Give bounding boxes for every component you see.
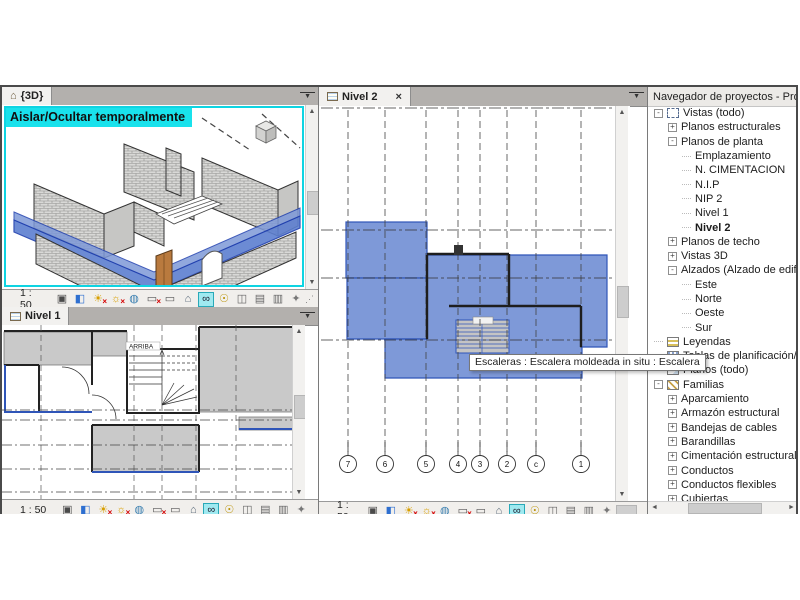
- collapse-icon[interactable]: -: [654, 109, 663, 118]
- tree-item-label: Planos de planta: [681, 136, 763, 148]
- crop-off-icon[interactable]: ▭×: [149, 503, 165, 515]
- render-icon[interactable]: ◍: [126, 292, 142, 307]
- tree-item-vistas-3d[interactable]: +Vistas 3D: [648, 249, 798, 263]
- tab-nivel2[interactable]: Nivel 2 ×: [319, 87, 411, 106]
- legend-icon: [667, 337, 679, 347]
- tab-nivel1-label: Nivel 1: [25, 310, 60, 322]
- displace-icon[interactable]: ▤: [257, 503, 273, 515]
- nivel2-tab-bar: Nivel 2 × ▼: [319, 87, 647, 107]
- expand-icon[interactable]: +: [668, 423, 677, 432]
- nivel1-canvas[interactable]: ARRIBA ▲ ▼: [2, 325, 305, 499]
- disabled-badge-icon: ×: [431, 506, 436, 515]
- tree-item-label: Armazón estructural: [681, 407, 779, 419]
- temporary-hide-isolate-banner: Aislar/Ocultar temporalmente: [6, 108, 192, 127]
- tree-item-planos-estructurales[interactable]: +Planos estructurales: [648, 120, 798, 134]
- worksharing-icon[interactable]: ◫: [234, 292, 250, 307]
- stair-plan: [129, 350, 197, 405]
- scroll-down-icon[interactable]: ▼: [306, 276, 318, 289]
- disabled-badge-icon: ×: [108, 505, 113, 515]
- tree-item-conductos-flexibles[interactable]: +Conductos flexibles: [648, 478, 798, 492]
- project-browser-panel: Navegador de proyectos - Proyec... -Vist…: [647, 87, 798, 514]
- tree-connector: [682, 184, 691, 185]
- crop-off-icon[interactable]: ▭×: [455, 504, 471, 515]
- shadows-off-icon[interactable]: ☀×: [401, 504, 417, 515]
- view3d-icon: ⌂: [10, 90, 17, 102]
- grid-bubble-label: 7: [346, 460, 351, 469]
- tree-item-alzados-alzado-de-edificio[interactable]: -Alzados (Alzado de edificio: [648, 263, 798, 277]
- shadows-off-icon[interactable]: ☀×: [95, 503, 111, 515]
- temporary-hide-isolate-icon[interactable]: ∞: [509, 504, 525, 515]
- tree-connector: [682, 227, 691, 228]
- element-tooltip: Escaleras : Escalera moldeada in situ : …: [469, 354, 706, 371]
- tree-item-este[interactable]: Este: [648, 278, 798, 292]
- expand-icon[interactable]: +: [668, 480, 677, 489]
- disabled-badge-icon: ×: [126, 505, 131, 515]
- shaded-view-icon[interactable]: ◧: [72, 292, 88, 307]
- tab-menu-arrow-icon[interactable]: ▼: [300, 92, 315, 101]
- nivel2-view-column: Nivel 2 × ▼: [318, 87, 647, 514]
- scroll-down-icon[interactable]: ▼: [616, 488, 628, 501]
- tree-item-sur[interactable]: Sur: [648, 320, 798, 334]
- tree-item-label: Vistas (todo): [683, 107, 745, 119]
- tree-item-label: Aparcamiento: [681, 393, 749, 405]
- tree-item-label: Leyendas: [683, 336, 731, 348]
- scroll-down-icon[interactable]: ▼: [293, 486, 305, 499]
- tree-item-n-i-p[interactable]: N.I.P: [648, 177, 798, 191]
- scale-button[interactable]: 1 : 50: [16, 503, 50, 514]
- visual-style-icon[interactable]: ▣: [365, 504, 381, 515]
- tree-item-label: Alzados (Alzado de edificio: [681, 264, 798, 276]
- tree-item-label: Familias: [683, 379, 724, 391]
- disabled-badge-icon: ×: [413, 506, 418, 515]
- worksharing-icon[interactable]: ◫: [239, 503, 255, 515]
- tree-item-label: Planos de techo: [681, 236, 760, 248]
- expand-icon[interactable]: +: [668, 252, 677, 261]
- grid-bubbles: 765432c1: [340, 442, 590, 473]
- stair-plan-nivel2: [456, 317, 509, 353]
- nivel2-view-control-bar: 1 : 50 ▣◧☀×☼×◍▭×▭⌂∞☉◫▤▥✦: [319, 501, 647, 514]
- grid-bubble-label: 1: [579, 460, 584, 469]
- tree-item-label: NIP 2: [695, 193, 722, 205]
- grid-bubble-label: 5: [424, 460, 429, 469]
- reveal-hidden-icon[interactable]: ☉: [221, 503, 237, 515]
- scope-cube: [256, 121, 276, 143]
- tree-item-aparcamiento[interactable]: +Aparcamiento: [648, 392, 798, 406]
- tree-item-label: Sur: [695, 322, 712, 334]
- temporary-hide-isolate-icon[interactable]: ∞: [198, 292, 214, 307]
- model-3d-drawing: [6, 108, 302, 285]
- scroll-up-icon[interactable]: ▲: [293, 325, 305, 338]
- tree-connector: [682, 284, 691, 285]
- crop-region-icon[interactable]: ▭: [473, 504, 489, 515]
- collapse-icon[interactable]: -: [668, 137, 677, 146]
- shaded-view-icon[interactable]: ◧: [77, 503, 93, 515]
- tab-nivel2-label: Nivel 2: [342, 91, 377, 103]
- shadows-off-icon[interactable]: ☀×: [90, 292, 106, 307]
- constraints-icon[interactable]: ▥: [275, 503, 291, 515]
- tree-connector: [682, 170, 691, 171]
- tree-item-conductos[interactable]: +Conductos: [648, 463, 798, 477]
- tree-item-label: Conductos: [681, 465, 734, 477]
- properties-icon[interactable]: ✦: [288, 292, 304, 307]
- tree-item-familias[interactable]: -Familias: [648, 378, 798, 392]
- tab-3d-label: {3D}: [21, 90, 44, 102]
- family-icon: [667, 380, 679, 390]
- left-view-column: ⌂ {3D} ▼ Aislar/Ocultar temporalmente: [2, 87, 318, 514]
- tree-connector: [682, 313, 691, 314]
- scroll-thumb[interactable]: [688, 503, 762, 514]
- tree-connector: [682, 327, 691, 328]
- tree-item-label: Cimentación estructural: [681, 450, 797, 462]
- project-browser-tree: -Vistas (todo)+Planos estructurales-Plan…: [648, 106, 798, 501]
- lock-view-icon[interactable]: ⌂: [180, 292, 196, 307]
- tree-connector: [654, 341, 663, 342]
- properties-icon[interactable]: ✦: [599, 504, 615, 515]
- properties-icon[interactable]: ✦: [293, 503, 309, 515]
- grid-bubble-label: 2: [505, 460, 510, 469]
- expand-icon[interactable]: +: [668, 123, 677, 132]
- tab-3d-view[interactable]: ⌂ {3D}: [2, 87, 52, 105]
- expand-icon[interactable]: +: [668, 466, 677, 475]
- resize-grip-icon[interactable]: ⋰: [305, 294, 314, 305]
- tree-item-label: Planos estructurales: [681, 121, 781, 133]
- tree-item-label: Nivel 1: [695, 207, 729, 219]
- sun-path-off-icon[interactable]: ☼×: [108, 292, 124, 307]
- scroll-thumb[interactable]: [294, 395, 305, 419]
- tree-item-label: Barandillas: [681, 436, 735, 448]
- expand-icon[interactable]: +: [668, 237, 677, 246]
- view3d-tab-bar: ⌂ {3D} ▼: [2, 87, 318, 106]
- disabled-badge-icon: ×: [467, 506, 472, 515]
- view3d-view-control-bar: 1 : 50 ▣◧☀×☼×◍▭×▭⌂∞☉◫▤▥✦ ⋰: [2, 289, 318, 308]
- tree-item-label: Cubiertas: [681, 493, 728, 501]
- displace-icon[interactable]: ▤: [252, 292, 268, 307]
- lock-view-icon[interactable]: ⌂: [185, 503, 201, 515]
- tree-connector: [682, 156, 691, 157]
- tree-item-planos-de-planta[interactable]: -Planos de planta: [648, 135, 798, 149]
- tree-item-label: Nivel 2: [695, 222, 730, 234]
- tree-connector: [682, 299, 691, 300]
- wall-detail: [454, 245, 463, 255]
- scroll-left-icon[interactable]: ◄: [648, 502, 661, 514]
- expand-icon[interactable]: +: [668, 452, 677, 461]
- tree-item-nip-2[interactable]: NIP 2: [648, 192, 798, 206]
- grid-bubble-label: 6: [383, 460, 388, 469]
- tree-connector: [682, 213, 691, 214]
- worksharing-icon[interactable]: ◫: [545, 504, 561, 515]
- collapse-icon[interactable]: -: [668, 266, 677, 275]
- constraints-icon[interactable]: ▥: [270, 292, 286, 307]
- tree-item-bandejas-de-cables[interactable]: +Bandejas de cables: [648, 421, 798, 435]
- tree-item-barandillas[interactable]: +Barandillas: [648, 435, 798, 449]
- tree-item-label: Este: [695, 279, 717, 291]
- crop-off-icon[interactable]: ▭×: [144, 292, 160, 307]
- expand-icon[interactable]: +: [668, 437, 677, 446]
- views-icon: [667, 108, 679, 118]
- view3d-vertical-scrollbar[interactable]: ▲ ▼: [305, 105, 318, 289]
- temporary-hide-isolate-icon[interactable]: ∞: [203, 503, 219, 515]
- nivel2-canvas[interactable]: 765432c1 ▲ ▼: [319, 106, 630, 501]
- revit-window: ⌂ {3D} ▼ Aislar/Ocultar temporalmente: [0, 85, 798, 514]
- sun-path-off-icon[interactable]: ☼×: [113, 503, 129, 515]
- disabled-badge-icon: ×: [162, 505, 167, 515]
- nivel1-tab-bar: Nivel 1 ▼: [2, 307, 318, 326]
- tab-menu-arrow-icon[interactable]: ▼: [300, 312, 315, 321]
- nivel1-plan-drawing: ARRIBA: [2, 325, 305, 499]
- tree-item-nivel-2[interactable]: Nivel 2: [648, 220, 798, 234]
- constraints-icon[interactable]: ▥: [581, 504, 597, 515]
- lock-view-icon[interactable]: ⌂: [491, 504, 507, 515]
- nivel1-view-control-bar: 1 : 50 ▣◧☀×☼×◍▭×▭⌂∞☉◫▤▥✦: [2, 499, 318, 514]
- render-icon[interactable]: ◍: [437, 504, 453, 515]
- tree-item-label: N. CIMENTACION: [695, 164, 785, 176]
- tab-nivel1[interactable]: Nivel 1: [2, 307, 69, 325]
- scroll-up-icon[interactable]: ▲: [616, 106, 628, 119]
- close-tab-icon[interactable]: ×: [395, 91, 401, 103]
- project-browser-title[interactable]: Navegador de proyectos - Proyec...: [648, 87, 798, 107]
- displace-icon[interactable]: ▤: [563, 504, 579, 515]
- view3d-canvas[interactable]: Aislar/Ocultar temporalmente: [2, 105, 318, 289]
- expand-icon[interactable]: +: [668, 395, 677, 404]
- view3d-viewport[interactable]: Aislar/Ocultar temporalmente: [4, 106, 304, 287]
- grid-bubble-label: 4: [456, 460, 461, 469]
- reveal-hidden-icon[interactable]: ☉: [527, 504, 543, 515]
- collapse-icon[interactable]: -: [654, 380, 663, 389]
- scale-button[interactable]: 1 : 50: [333, 498, 356, 514]
- tree-item-nivel-1[interactable]: Nivel 1: [648, 206, 798, 220]
- tree-item-oeste[interactable]: Oeste: [648, 306, 798, 320]
- tree-item-label: Bandejas de cables: [681, 422, 777, 434]
- tree-item-armaz-n-estructural[interactable]: +Armazón estructural: [648, 406, 798, 420]
- tree-item-label: Vistas 3D: [681, 250, 728, 262]
- tree-item-emplazamiento[interactable]: Emplazamiento: [648, 149, 798, 163]
- screenshot-root: { "colors":{"accent_cyan":"#19e2ec","sel…: [0, 0, 800, 600]
- crop-region-icon[interactable]: ▭: [167, 503, 183, 515]
- grid-bubble-label: c: [534, 460, 538, 469]
- tree-item-cubiertas[interactable]: +Cubiertas: [648, 492, 798, 501]
- render-icon[interactable]: ◍: [131, 503, 147, 515]
- tree-item-vistas-todo[interactable]: -Vistas (todo): [648, 106, 798, 120]
- tree-item-leyendas[interactable]: Leyendas: [648, 335, 798, 349]
- tree-item-planos-de-techo[interactable]: +Planos de techo: [648, 235, 798, 249]
- tree-item-label: Oeste: [695, 307, 724, 319]
- plan-view-icon: [10, 312, 21, 321]
- tree-item-cimentaci-n-estructural[interactable]: +Cimentación estructural: [648, 449, 798, 463]
- nivel2-plan-drawing: 765432c1: [319, 106, 630, 501]
- scroll-right-icon[interactable]: ►: [785, 502, 798, 514]
- stair-direction-label: ARRIBA: [129, 344, 154, 351]
- expand-icon[interactable]: +: [668, 409, 677, 418]
- tree-item-norte[interactable]: Norte: [648, 292, 798, 306]
- tab-menu-arrow-icon[interactable]: ▼: [629, 92, 644, 101]
- sun-path-off-icon[interactable]: ☼×: [419, 504, 435, 515]
- visual-style-icon[interactable]: ▣: [59, 503, 75, 515]
- crop-region-icon[interactable]: ▭: [162, 292, 178, 307]
- scroll-up-icon[interactable]: ▲: [306, 105, 318, 118]
- shaded-view-icon[interactable]: ◧: [383, 504, 399, 515]
- grid-bubble-label: 3: [478, 460, 483, 469]
- tree-item-label: N.I.P: [695, 179, 719, 191]
- tree-item-label: Norte: [695, 293, 722, 305]
- scroll-thumb[interactable]: [617, 286, 629, 318]
- tree-item-label: Emplazamiento: [695, 150, 771, 162]
- nivel1-vertical-scrollbar[interactable]: ▲ ▼: [292, 325, 305, 499]
- reveal-hidden-icon[interactable]: ☉: [216, 292, 232, 307]
- tree-item-label: Conductos flexibles: [681, 479, 776, 491]
- tree-connector: [682, 198, 691, 199]
- nivel2-vertical-scrollbar[interactable]: ▲ ▼: [615, 106, 628, 501]
- browser-horizontal-scrollbar[interactable]: ◄ ►: [648, 501, 798, 514]
- plan-view-icon: [327, 92, 338, 101]
- tree-item-n-cimentacion[interactable]: N. CIMENTACION: [648, 163, 798, 177]
- visual-style-icon[interactable]: ▣: [54, 292, 70, 307]
- horizontal-scroll-thumb[interactable]: [616, 505, 637, 514]
- scroll-thumb[interactable]: [307, 191, 318, 215]
